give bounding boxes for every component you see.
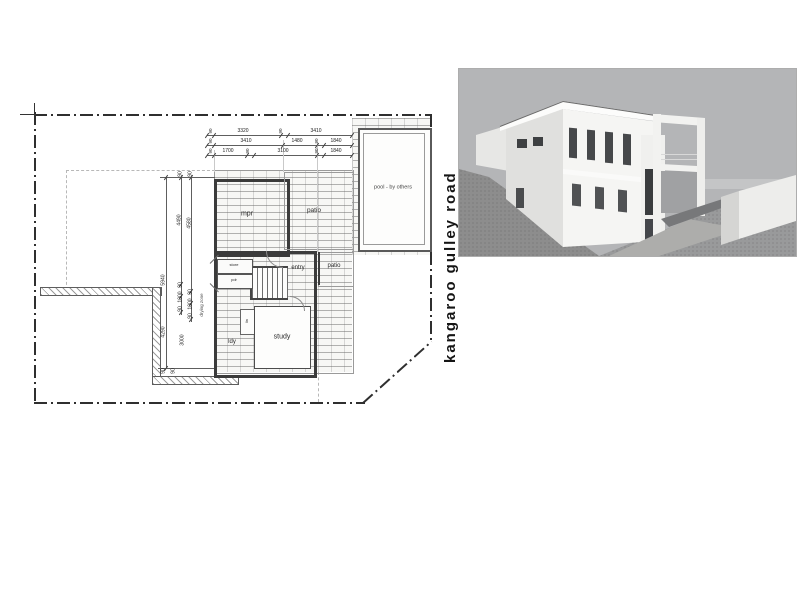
setback-line-left	[66, 170, 67, 290]
dim: 90	[209, 148, 214, 153]
dim: 3000	[181, 334, 186, 345]
powder-label: pdr	[231, 278, 237, 282]
store-label: store	[230, 263, 239, 267]
render-portico-right-upright	[697, 118, 705, 216]
laundry-label: ldy	[228, 339, 236, 345]
dim: 90	[279, 128, 284, 133]
dim: 1480	[291, 139, 302, 144]
dim: 90	[189, 289, 194, 295]
dim: 3410	[240, 139, 251, 144]
render-lower-window-2	[595, 187, 604, 210]
boundary-left	[34, 112, 36, 403]
dim-line-row2	[207, 145, 352, 146]
boundary-top	[34, 114, 432, 116]
drying-zone-label: drying zone	[200, 293, 205, 316]
dim: 90	[179, 282, 184, 288]
road-name-label: kangaroo gulley road	[442, 145, 459, 363]
dim: 1840	[330, 139, 341, 144]
render-upper-window-1	[569, 128, 577, 159]
projection-line	[318, 372, 319, 402]
mpr-label: mpr	[241, 211, 253, 218]
dim: 1840	[330, 149, 341, 154]
dim: 4290	[162, 326, 167, 337]
dim: 90	[189, 171, 194, 177]
stairs	[250, 266, 288, 300]
render-balcony-rail-2	[661, 159, 697, 160]
dim: 90	[209, 138, 214, 143]
dim: 1000	[179, 291, 184, 302]
dim: 90	[179, 306, 184, 312]
dim: 4490	[178, 214, 183, 225]
patio-small-wall	[318, 252, 320, 285]
dim: 90	[209, 128, 214, 133]
dim-ext-top	[160, 177, 215, 178]
boundary-diagonal	[362, 341, 432, 404]
dim-line-row3	[207, 155, 352, 156]
witness-3	[317, 142, 318, 252]
render-upper-window-2	[587, 130, 595, 161]
drawing-sheet: pool - by others mpr patio entry patio s…	[0, 0, 800, 600]
render-side-door	[516, 188, 524, 208]
dim: 5940	[162, 274, 167, 285]
render-portico-interior-shade	[661, 171, 697, 213]
corner-tick-v	[34, 103, 35, 116]
patio-small-label: patio	[327, 263, 340, 269]
mpr-walls	[214, 179, 290, 257]
render-portico-left-upright	[653, 114, 661, 244]
pool-label: pool - by others	[374, 185, 412, 191]
dim: 3410	[310, 129, 321, 134]
entry-label: entry	[291, 265, 304, 271]
dim-line-left1	[166, 177, 167, 368]
render-photo	[458, 68, 797, 257]
render-lower-window-1	[572, 184, 581, 207]
dim: 90	[172, 368, 177, 374]
dim: 90	[315, 138, 320, 143]
patio-small-outline	[318, 252, 354, 287]
dim: 1700	[222, 149, 233, 154]
dim: 3320	[237, 129, 248, 134]
patio-label: patio	[307, 208, 321, 215]
boundary-bottom	[34, 402, 365, 404]
retaining-wall-top	[40, 287, 162, 296]
dim: 90	[246, 148, 251, 153]
dim: 90	[189, 313, 194, 319]
study-label: study	[274, 334, 291, 341]
dim: 1000	[189, 298, 194, 309]
render-side-window-1	[517, 139, 527, 148]
render-lower-window-3	[618, 190, 627, 213]
render-upper-window-3	[605, 132, 613, 164]
dim: 3100	[277, 149, 288, 154]
linen-label: lin	[245, 319, 249, 323]
dim: 4580	[188, 217, 193, 228]
dim: 90	[162, 368, 167, 374]
dim: 90	[179, 171, 184, 177]
dim: 90	[315, 148, 320, 153]
render-side-window-2	[533, 137, 543, 146]
render-upper-window-4	[623, 134, 631, 166]
render-balcony-rail-1	[661, 154, 697, 155]
